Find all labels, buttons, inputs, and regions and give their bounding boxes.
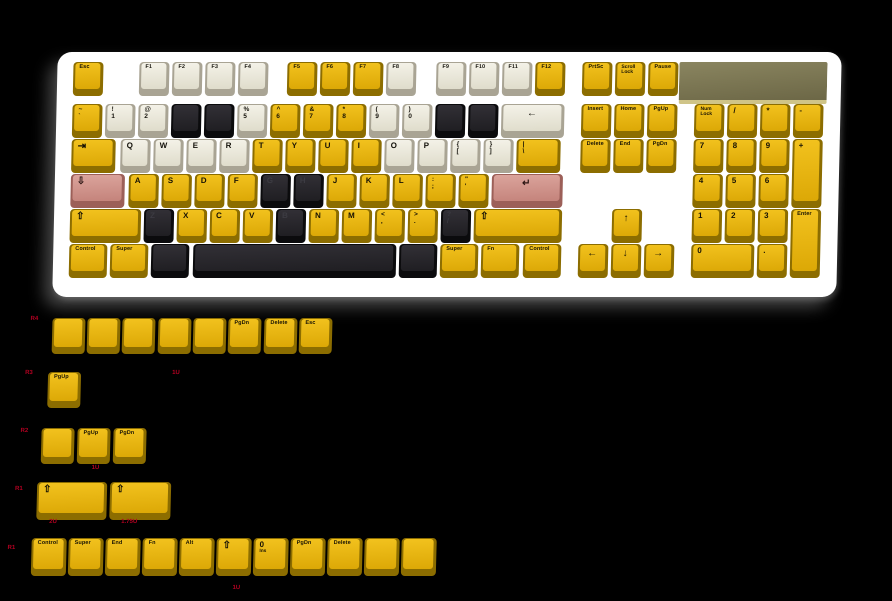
key-legend: ⇧ [43, 485, 52, 496]
key-r2-pgdn[interactable]: PgDn [113, 428, 147, 464]
keycap-face: Delete [266, 319, 295, 347]
key-r4-esc[interactable]: Esc [299, 318, 333, 354]
key-r4-delete[interactable]: Delete [264, 318, 298, 354]
key-r2-pgup[interactable]: PgUp [77, 428, 111, 464]
key-legend: Control [38, 541, 58, 547]
row-size-label: R2 [21, 428, 29, 434]
row-size-label: 1U [172, 370, 180, 376]
row-size-label: R1 [15, 486, 23, 492]
row-size-label: R3 [25, 370, 33, 376]
keycap-face: PgDn [115, 429, 144, 457]
key-legend-bottom: Ins [259, 549, 266, 554]
key-legend: PgUp [83, 431, 98, 437]
key-r1-shift-2u[interactable]: ⇧ [36, 482, 107, 520]
key-legend: Esc [305, 321, 315, 327]
key-legend: 0Ins [259, 541, 266, 554]
key-b-control[interactable]: Control [31, 538, 67, 576]
keycap-face: PgDn [230, 319, 259, 347]
row-size-label: 1U [232, 585, 240, 591]
key-legend: PgDn [119, 431, 134, 437]
keycap-face: Esc [301, 319, 330, 347]
key-r4-blank4[interactable] [158, 318, 192, 354]
key-legend: Fn [149, 541, 156, 547]
key-b-alt[interactable]: Alt [179, 538, 215, 576]
key-legend: ⇧ [222, 541, 231, 552]
keycap-face [43, 429, 72, 457]
key-b-np0[interactable]: 0Ins [253, 538, 289, 576]
key-r3-pgup[interactable]: PgUp [47, 372, 81, 408]
keycap-face: ⇧ [111, 483, 168, 513]
keycap-face [160, 319, 189, 347]
key-legend: Delete [270, 321, 287, 327]
keycap-face: ⇧ [38, 483, 104, 513]
key-b-delete[interactable]: Delete [327, 538, 363, 576]
keycap-face [195, 319, 224, 347]
key-b-end[interactable]: End [105, 538, 141, 576]
row-size-label: R4 [30, 316, 38, 322]
key-b-super[interactable]: Super [68, 538, 104, 576]
key-legend: PgDn [297, 541, 312, 547]
key-legend: End [112, 541, 123, 547]
key-r1-shift-175u[interactable]: ⇧ [109, 482, 171, 520]
spare-keycaps-layer: PgDnDeleteEscPgUpPgUpPgDn⇧⇧ControlSuperE… [0, 0, 892, 601]
key-legend: ⇧ [116, 485, 125, 496]
key-b-fn[interactable]: Fn [142, 538, 178, 576]
keycap-face: 0Ins [255, 539, 286, 569]
key-legend: Alt [186, 541, 194, 547]
key-legend: PgUp [54, 375, 69, 381]
keycap-face [403, 539, 434, 569]
keycap-face [124, 319, 153, 347]
keycap-face: PgUp [79, 429, 108, 457]
key-b-blank1[interactable] [364, 538, 400, 576]
key-r4-blank1[interactable] [52, 318, 86, 354]
keycap-face [366, 539, 397, 569]
keycap-face: Fn [144, 539, 175, 569]
keycap-face: Delete [329, 539, 360, 569]
keycap-face: PgDn [292, 539, 323, 569]
row-size-label: 1U [92, 465, 100, 471]
keycap-face: Alt [181, 539, 212, 569]
key-r4-blank5[interactable] [193, 318, 227, 354]
keycap-face: ⇧ [218, 539, 249, 569]
key-legend: PgDn [234, 321, 249, 327]
key-legend: Delete [334, 541, 351, 547]
key-r4-pgdn[interactable]: PgDn [228, 318, 262, 354]
row-size-label: R1 [7, 545, 15, 551]
render-stage: EscF1F2F3F4F5F6F7F8F9F10F11F12~`!1@2%5^6… [0, 0, 892, 601]
key-b-shift[interactable]: ⇧ [216, 538, 252, 576]
key-r4-blank2[interactable] [87, 318, 121, 354]
keycap-face: Control [33, 539, 64, 569]
key-b-blank2[interactable] [401, 538, 437, 576]
row-size-label: 1.75U [121, 519, 137, 525]
keycap-face: PgUp [49, 373, 78, 401]
keycap-face [54, 319, 83, 347]
key-r2-blank[interactable] [41, 428, 75, 464]
row-size-label: 2U [49, 519, 57, 525]
keycap-face [89, 319, 118, 347]
key-b-pgdn[interactable]: PgDn [290, 538, 326, 576]
key-legend: Super [75, 541, 91, 547]
key-r4-blank3[interactable] [122, 318, 156, 354]
keycap-face: Super [70, 539, 101, 569]
keycap-face: End [107, 539, 138, 569]
